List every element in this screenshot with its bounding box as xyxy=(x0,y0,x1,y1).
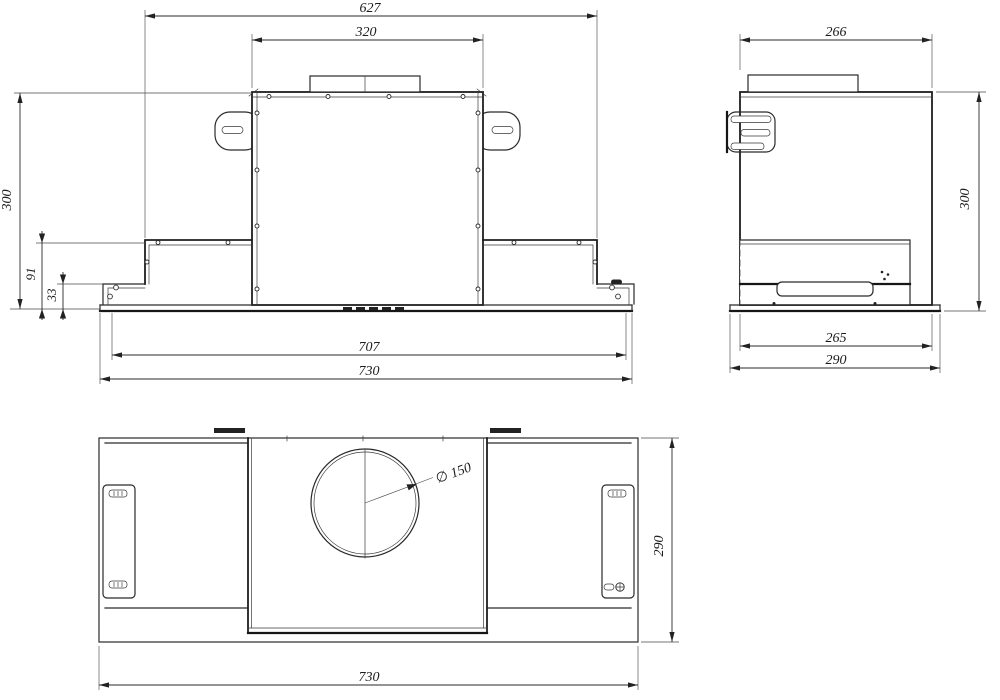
dim-side-height: 300 xyxy=(936,92,986,311)
dim-label-320: 320 xyxy=(355,25,377,40)
side-view: 266 300 265 290 xyxy=(727,25,986,373)
dim-front-body-width: 707 xyxy=(112,313,626,360)
front-view: 627 320 300 91 33 xyxy=(0,1,634,384)
dim-label-730-plan: 730 xyxy=(359,670,380,685)
dim-label-91: 91 xyxy=(23,268,38,281)
dim-side-body-depth: 265 xyxy=(740,314,932,351)
dim-label-707: 707 xyxy=(359,340,381,355)
drawing-sheet: 627 320 300 91 33 xyxy=(0,0,1000,700)
hinge-bump xyxy=(611,280,622,285)
tab-mark-left xyxy=(214,428,245,433)
shoulder-left xyxy=(103,240,252,304)
dim-front-visor-height: 33 xyxy=(44,272,103,320)
dim-label-266: 266 xyxy=(826,25,847,40)
dim-label-300-side: 300 xyxy=(958,189,973,211)
handle-recess xyxy=(777,282,873,296)
dim-plan-width: 730 xyxy=(99,646,638,690)
bracket-right-plan xyxy=(602,485,634,598)
technical-drawing: 627 320 300 91 33 xyxy=(0,0,1000,700)
hood-body-front xyxy=(252,92,483,305)
dim-label-300-front: 300 xyxy=(0,190,15,212)
visor-plate-plan xyxy=(99,438,638,642)
dim-front-lower-height: 91 xyxy=(23,231,145,320)
bracket-slot xyxy=(741,130,770,137)
dim-plan-depth: 290 xyxy=(641,438,679,642)
dim-label-33: 33 xyxy=(44,288,59,303)
dim-label-627: 627 xyxy=(360,1,382,16)
vent-dashes xyxy=(343,307,404,310)
shoulder-right xyxy=(483,240,634,304)
bracket-slot xyxy=(731,116,771,123)
tab-slot-right xyxy=(492,127,513,134)
lower-box-side xyxy=(740,240,910,305)
duct-flange-side xyxy=(748,75,858,92)
bracket-slot xyxy=(731,143,764,150)
foot-bracket-right xyxy=(597,284,634,304)
tab-slot-left xyxy=(222,127,243,134)
dim-label-290-side: 290 xyxy=(826,353,847,368)
dim-label-290-plan: 290 xyxy=(652,536,667,557)
plan-view: ∅ 150 290 730 xyxy=(99,428,679,690)
bracket-left-plan xyxy=(103,485,135,598)
tab-mark-right xyxy=(490,428,521,433)
bracket-slot xyxy=(604,584,614,590)
dim-label-265: 265 xyxy=(826,331,847,346)
dim-label-730-front: 730 xyxy=(359,364,380,379)
